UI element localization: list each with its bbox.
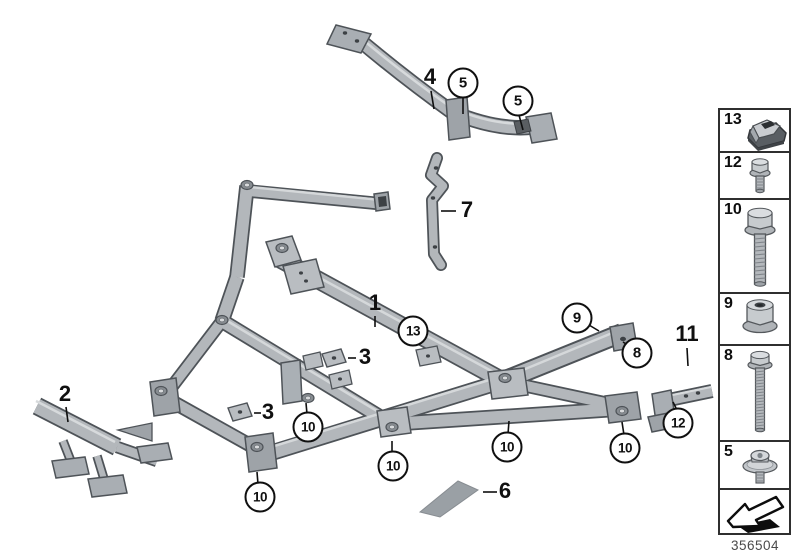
part-label-7[interactable]: 7	[461, 199, 473, 221]
parts-diagram-page: 551398121010101010412733116 13 12	[0, 0, 800, 560]
legend-item-5[interactable]: 5	[720, 442, 789, 490]
part-2-bracket	[36, 401, 172, 497]
part-7-strip-bracket	[431, 158, 443, 265]
leader-line	[687, 348, 688, 366]
part-label-4[interactable]: 4	[424, 66, 436, 88]
callout-circle-10[interactable]: 10	[610, 433, 641, 464]
part-label-11[interactable]: 11	[675, 323, 698, 345]
tube-open-end	[374, 192, 390, 211]
callout-circle-10[interactable]: 10	[492, 432, 523, 463]
legend-number: 10	[724, 201, 742, 219]
callout-circle-10[interactable]: 10	[293, 412, 324, 443]
part-label-3[interactable]: 3	[262, 401, 274, 423]
legend-number: 12	[724, 154, 742, 172]
callout-circle-8[interactable]: 8	[622, 338, 653, 369]
legend-number: 9	[724, 295, 733, 313]
callout-circle-12[interactable]: 12	[663, 408, 694, 439]
bolt-bosses	[155, 181, 628, 452]
legend-item-10[interactable]: 10	[720, 200, 789, 294]
drawing-number: 356504	[706, 538, 800, 553]
fastener-legend: 13 12	[718, 108, 791, 535]
part-label-2[interactable]: 2	[59, 383, 71, 405]
legend-item-12[interactable]: 12	[720, 153, 789, 200]
legend-number: 8	[724, 347, 733, 365]
part-3-plates	[228, 349, 346, 421]
part-6-pad	[420, 481, 478, 517]
part-label-6[interactable]: 6	[499, 480, 511, 502]
direction-arrow-icon	[720, 490, 789, 533]
callout-circle-9[interactable]: 9	[562, 303, 593, 334]
center-pillar	[281, 360, 302, 404]
callout-circle-10[interactable]: 10	[378, 451, 409, 482]
legend-number: 5	[724, 443, 733, 461]
legend-direction-cell	[720, 490, 789, 533]
callout-circle-10[interactable]: 10	[245, 482, 276, 513]
part-label-3[interactable]: 3	[359, 346, 371, 368]
callout-circle-13[interactable]: 13	[398, 316, 429, 347]
part-4-upper-bracket	[327, 25, 557, 143]
callout-circle-5[interactable]: 5	[448, 68, 479, 99]
leader-line	[66, 407, 68, 422]
callout-circle-5[interactable]: 5	[503, 86, 534, 117]
leader-line	[519, 115, 523, 130]
leader-line	[589, 325, 599, 331]
legend-number: 13	[724, 111, 742, 129]
part-label-1[interactable]: 1	[369, 292, 381, 314]
legend-item-9[interactable]: 9	[720, 294, 789, 346]
legend-item-8[interactable]: 8	[720, 346, 789, 442]
legend-item-13[interactable]: 13	[720, 110, 789, 153]
leader-line	[431, 91, 434, 109]
